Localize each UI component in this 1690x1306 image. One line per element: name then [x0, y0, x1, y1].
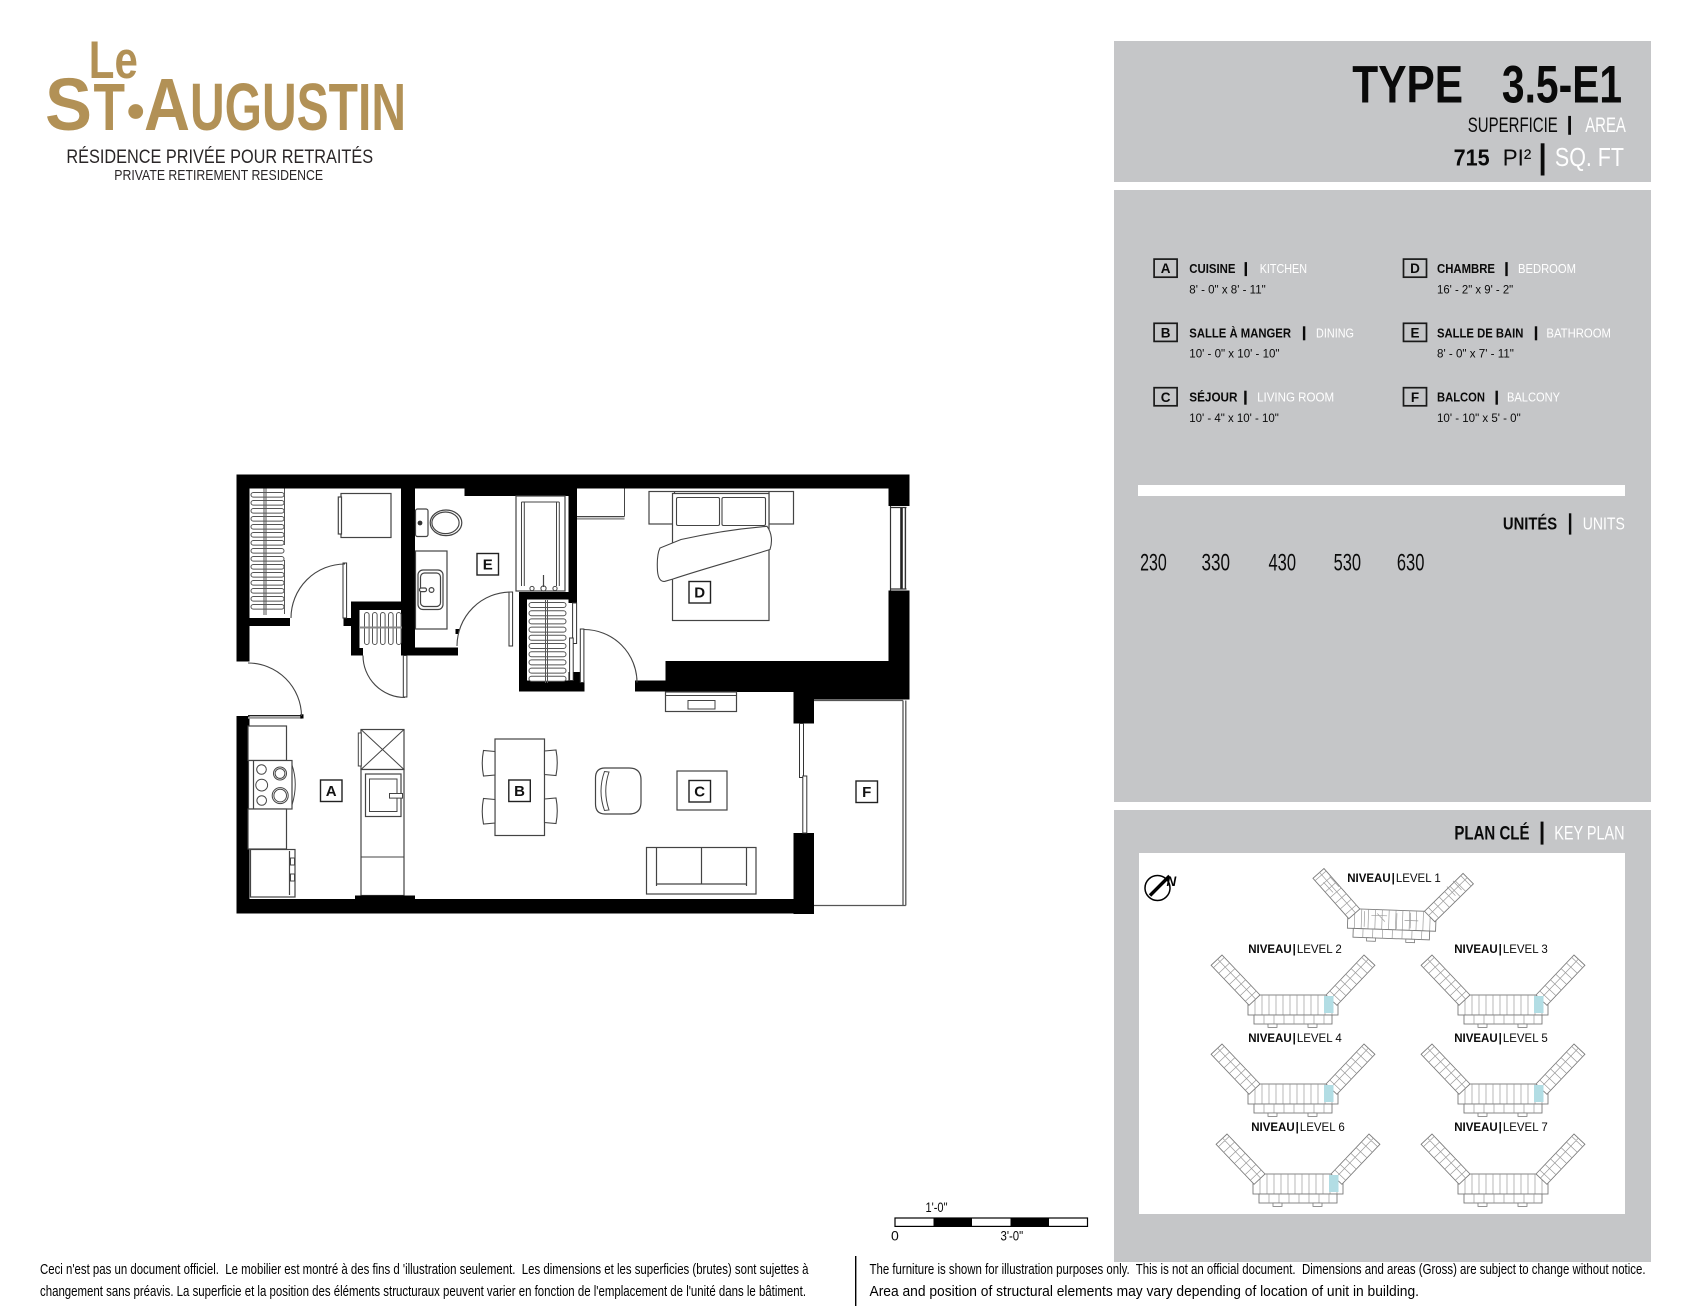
- svg-text:F: F: [1411, 390, 1419, 405]
- svg-text:8' - 0" x 7' - 11": 8' - 0" x 7' - 11": [1437, 347, 1514, 361]
- svg-text:B: B: [514, 783, 525, 800]
- svg-text:CUISINE: CUISINE: [1189, 261, 1235, 276]
- svg-text:3'-0": 3'-0": [1001, 1228, 1024, 1244]
- svg-text:KITCHEN: KITCHEN: [1260, 261, 1307, 276]
- svg-text:10' - 4" x 10' - 10": 10' - 4" x 10' - 10": [1189, 411, 1279, 425]
- svg-text:N: N: [1167, 874, 1177, 889]
- svg-text:CHAMBRE: CHAMBRE: [1437, 261, 1495, 276]
- svg-text:3.5-E1: 3.5-E1: [1502, 56, 1622, 115]
- svg-text:KEY PLAN: KEY PLAN: [1554, 822, 1624, 844]
- svg-text:10' - 0" x 10' - 10": 10' - 0" x 10' - 10": [1189, 347, 1279, 361]
- svg-text:BEDROOM: BEDROOM: [1518, 261, 1576, 276]
- svg-text:NIVEAU | LEVEL 1: NIVEAU | LEVEL 1: [1347, 873, 1441, 885]
- svg-text:230: 230: [1140, 550, 1167, 577]
- svg-text:UNITÉS: UNITÉS: [1503, 512, 1557, 533]
- svg-text:RÉSIDENCE PRIVÉE POUR RETRAITÉ: RÉSIDENCE PRIVÉE POUR RETRAITÉS: [66, 147, 373, 168]
- svg-text:NIVEAU | LEVEL 7: NIVEAU | LEVEL 7: [1454, 1122, 1548, 1134]
- svg-text:B: B: [1161, 325, 1171, 340]
- svg-text:SQ. FT: SQ. FT: [1555, 142, 1624, 172]
- svg-text:LIVING ROOM: LIVING ROOM: [1257, 390, 1334, 405]
- svg-text:The furniture is shown for ill: The furniture is shown for illustration …: [870, 1261, 1646, 1278]
- svg-text:SÉJOUR: SÉJOUR: [1189, 390, 1238, 405]
- svg-text:UNITS: UNITS: [1583, 513, 1625, 533]
- svg-text:PRIVATE RETIREMENT RESIDENCE: PRIVATE RETIREMENT RESIDENCE: [114, 167, 323, 184]
- svg-text:DINING: DINING: [1316, 325, 1354, 340]
- svg-text:630: 630: [1397, 550, 1425, 577]
- svg-text:SALLE DE BAIN: SALLE DE BAIN: [1437, 325, 1523, 340]
- svg-text:16' - 2" x 9' - 2": 16' - 2" x 9' - 2": [1437, 282, 1513, 296]
- svg-text:C: C: [1161, 390, 1171, 405]
- svg-text:BALCON: BALCON: [1437, 390, 1485, 405]
- svg-text:SALLE À MANGER: SALLE À MANGER: [1189, 325, 1291, 340]
- svg-text:UGUSTIN: UGUSTIN: [190, 71, 406, 145]
- svg-text:NIVEAU | LEVEL 3: NIVEAU | LEVEL 3: [1454, 944, 1548, 956]
- svg-text:A: A: [1161, 261, 1171, 276]
- svg-text:10' - 10" x 5' - 0": 10' - 10" x 5' - 0": [1437, 411, 1521, 425]
- svg-text:AREA: AREA: [1585, 114, 1626, 137]
- svg-text:530: 530: [1334, 550, 1362, 577]
- svg-text:8' - 0" x 8' - 11": 8' - 0" x 8' - 11": [1189, 282, 1265, 296]
- svg-text:BATHROOM: BATHROOM: [1546, 325, 1611, 340]
- svg-text:NIVEAU | LEVEL 4: NIVEAU | LEVEL 4: [1248, 1033, 1342, 1045]
- svg-text:BALCONY: BALCONY: [1507, 390, 1560, 405]
- svg-text:0: 0: [891, 1228, 899, 1244]
- svg-text:E: E: [483, 557, 493, 574]
- svg-text:NIVEAU | LEVEL 6: NIVEAU | LEVEL 6: [1251, 1122, 1345, 1134]
- svg-text:C: C: [694, 784, 705, 801]
- svg-text:Area and position of structura: Area and position of structural elements…: [870, 1283, 1420, 1300]
- svg-text:1'-0": 1'-0": [926, 1199, 948, 1215]
- svg-text:D: D: [1410, 261, 1420, 276]
- svg-text:A: A: [144, 63, 190, 146]
- svg-text:330: 330: [1202, 550, 1231, 577]
- svg-text:PI²: PI²: [1503, 145, 1532, 171]
- svg-text:S: S: [45, 63, 92, 146]
- svg-text:F: F: [862, 784, 871, 801]
- svg-text:D: D: [694, 585, 705, 602]
- svg-text:NIVEAU | LEVEL 2: NIVEAU | LEVEL 2: [1248, 944, 1342, 956]
- svg-text:715: 715: [1454, 145, 1490, 171]
- svg-text:E: E: [1410, 325, 1419, 340]
- svg-text:A: A: [326, 783, 337, 800]
- svg-text:PLAN CLÉ: PLAN CLÉ: [1454, 821, 1529, 844]
- svg-text:SUPERFICIE: SUPERFICIE: [1468, 114, 1558, 137]
- svg-text:T: T: [94, 71, 126, 145]
- svg-text:430: 430: [1269, 550, 1297, 577]
- svg-text:NIVEAU | LEVEL 5: NIVEAU | LEVEL 5: [1454, 1033, 1548, 1045]
- svg-text:changement sans préavis. La su: changement sans préavis. La superficie e…: [40, 1283, 806, 1300]
- svg-text:Ceci n'est pas un document off: Ceci n'est pas un document officiel. Le …: [40, 1261, 809, 1278]
- svg-text:TYPE: TYPE: [1352, 56, 1463, 115]
